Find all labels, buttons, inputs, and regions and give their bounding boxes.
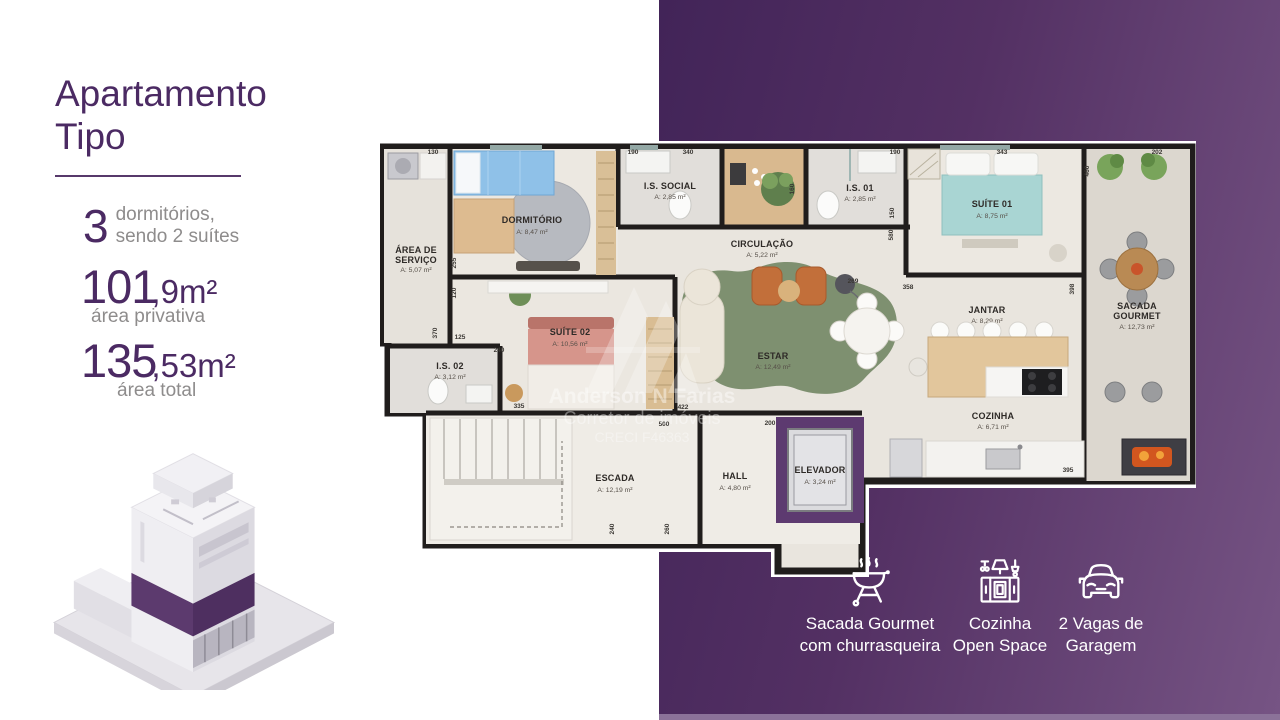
stat-total-area: 135 ,53m² área total (81, 337, 365, 402)
stat-private-area: 101 ,9m² área privativa (81, 263, 365, 328)
feature-cozinha-open-space: Cozinha Open Space (940, 556, 1060, 657)
svg-text:190: 190 (628, 149, 639, 156)
svg-text:395: 395 (1063, 467, 1074, 474)
svg-text:DORMITÓRIO: DORMITÓRIO (502, 214, 563, 225)
svg-text:A: 8,47 m²: A: 8,47 m² (516, 229, 548, 236)
svg-text:A: 2,85 m²: A: 2,85 m² (654, 194, 686, 201)
svg-text:A: 12,19 m²: A: 12,19 m² (597, 487, 633, 494)
svg-text:460: 460 (1084, 165, 1091, 176)
barbecue-grill-icon (788, 556, 952, 608)
floor-plan: ÁREA DE SERVIÇO A: 5,07 m² DORMITÓRIO A:… (380, 141, 1196, 577)
svg-text:A: 5,07 m²: A: 5,07 m² (400, 267, 432, 274)
svg-text:CIRCULAÇÃO: CIRCULAÇÃO (731, 239, 794, 249)
feature-label: 2 Vagas de Garagem (1046, 613, 1156, 657)
page-title: ApartamentoTipo (55, 72, 365, 159)
svg-text:335: 335 (514, 403, 525, 410)
svg-text:SERVIÇO: SERVIÇO (395, 255, 437, 265)
svg-text:340: 340 (683, 149, 694, 156)
svg-text:120: 120 (451, 287, 458, 298)
apartment-info-panel: ApartamentoTipo 3 dormitórios, sendo 2 s… (55, 72, 365, 402)
svg-text:HALL: HALL (723, 471, 748, 481)
building-3d-illustration (44, 412, 342, 690)
footer-accent-bar (659, 714, 1280, 720)
svg-text:ESTAR: ESTAR (758, 351, 789, 361)
svg-text:COZINHA: COZINHA (972, 411, 1015, 421)
total-area-label: área total (117, 380, 365, 402)
total-area-value: 135 (81, 337, 156, 384)
car-icon (1046, 556, 1156, 608)
svg-text:240: 240 (609, 523, 616, 534)
title-line2: Tipo (55, 116, 126, 157)
bedrooms-count: 3 (83, 203, 109, 249)
svg-text:A: 10,56 m²: A: 10,56 m² (552, 341, 588, 348)
private-area-label: área privativa (91, 306, 365, 328)
svg-text:ÁREA DE: ÁREA DE (395, 245, 437, 255)
svg-text:A: 3,12 m²: A: 3,12 m² (434, 374, 466, 381)
stat-bedrooms: 3 dormitórios, sendo 2 suítes (83, 203, 365, 249)
svg-text:A: 4,80 m²: A: 4,80 m² (719, 485, 751, 492)
svg-text:240: 240 (494, 347, 505, 354)
title-line1: Apartamento (55, 73, 267, 114)
svg-text:GOURMET: GOURMET (1113, 311, 1161, 321)
svg-text:200: 200 (765, 420, 776, 427)
svg-text:I.S. SOCIAL: I.S. SOCIAL (644, 181, 697, 191)
svg-text:A: 3,24 m²: A: 3,24 m² (804, 479, 836, 486)
svg-text:125: 125 (455, 334, 466, 341)
total-area-unit: ,53m² (151, 349, 235, 382)
room-elevador: ELEVADOR A: 3,24 m² (776, 417, 864, 523)
svg-text:JANTAR: JANTAR (968, 305, 1005, 315)
svg-text:255: 255 (451, 257, 458, 268)
svg-text:A: 8,75 m²: A: 8,75 m² (976, 213, 1008, 220)
marketing-slide: ApartamentoTipo 3 dormitórios, sendo 2 s… (0, 0, 1280, 720)
svg-text:580: 580 (888, 229, 895, 240)
private-area-value: 101 (81, 263, 156, 310)
svg-text:I.S. 01: I.S. 01 (846, 183, 873, 193)
svg-text:160: 160 (789, 183, 796, 194)
watermark-role: Corretor de imóveis (563, 408, 720, 428)
svg-text:150: 150 (889, 207, 896, 218)
watermark-name: Anderson N Farias (549, 385, 736, 408)
feature-sacada-gourmet: Sacada Gourmet com churrasqueira (788, 556, 952, 657)
title-divider (55, 175, 241, 177)
svg-text:190: 190 (890, 149, 901, 156)
svg-text:SUÍTE 01: SUÍTE 01 (972, 199, 1013, 209)
private-area-unit: ,9m² (151, 275, 217, 308)
svg-text:A: 6,71 m²: A: 6,71 m² (977, 424, 1009, 431)
svg-text:260: 260 (664, 523, 671, 534)
svg-text:202: 202 (1152, 149, 1163, 156)
svg-text:A: 12,73 m²: A: 12,73 m² (1119, 324, 1155, 331)
svg-text:I.S. 02: I.S. 02 (436, 361, 463, 371)
svg-text:ELEVADOR: ELEVADOR (795, 465, 846, 475)
svg-text:SUÍTE 02: SUÍTE 02 (550, 327, 591, 337)
kitchen-hood-icon (940, 556, 1060, 608)
watermark-creci: CRECI F46363 (595, 429, 690, 445)
svg-text:370: 370 (432, 327, 439, 338)
svg-text:A: 5,22 m²: A: 5,22 m² (746, 252, 778, 259)
svg-text:SACADA: SACADA (1117, 301, 1157, 311)
svg-text:A: 2,85 m²: A: 2,85 m² (844, 196, 876, 203)
svg-text:ESCADA: ESCADA (595, 473, 635, 483)
svg-text:398: 398 (1069, 283, 1076, 294)
svg-text:343: 343 (997, 149, 1008, 156)
svg-text:358: 358 (903, 284, 914, 291)
feature-label: Sacada Gourmet com churrasqueira (788, 613, 952, 657)
svg-text:269: 269 (848, 278, 859, 285)
bedrooms-label: dormitórios, sendo 2 suítes (116, 204, 240, 247)
svg-text:130: 130 (428, 149, 439, 156)
svg-text:A: 12,49 m²: A: 12,49 m² (755, 364, 791, 371)
feature-vagas-garagem: 2 Vagas de Garagem (1046, 556, 1156, 657)
feature-label: Cozinha Open Space (940, 613, 1060, 657)
